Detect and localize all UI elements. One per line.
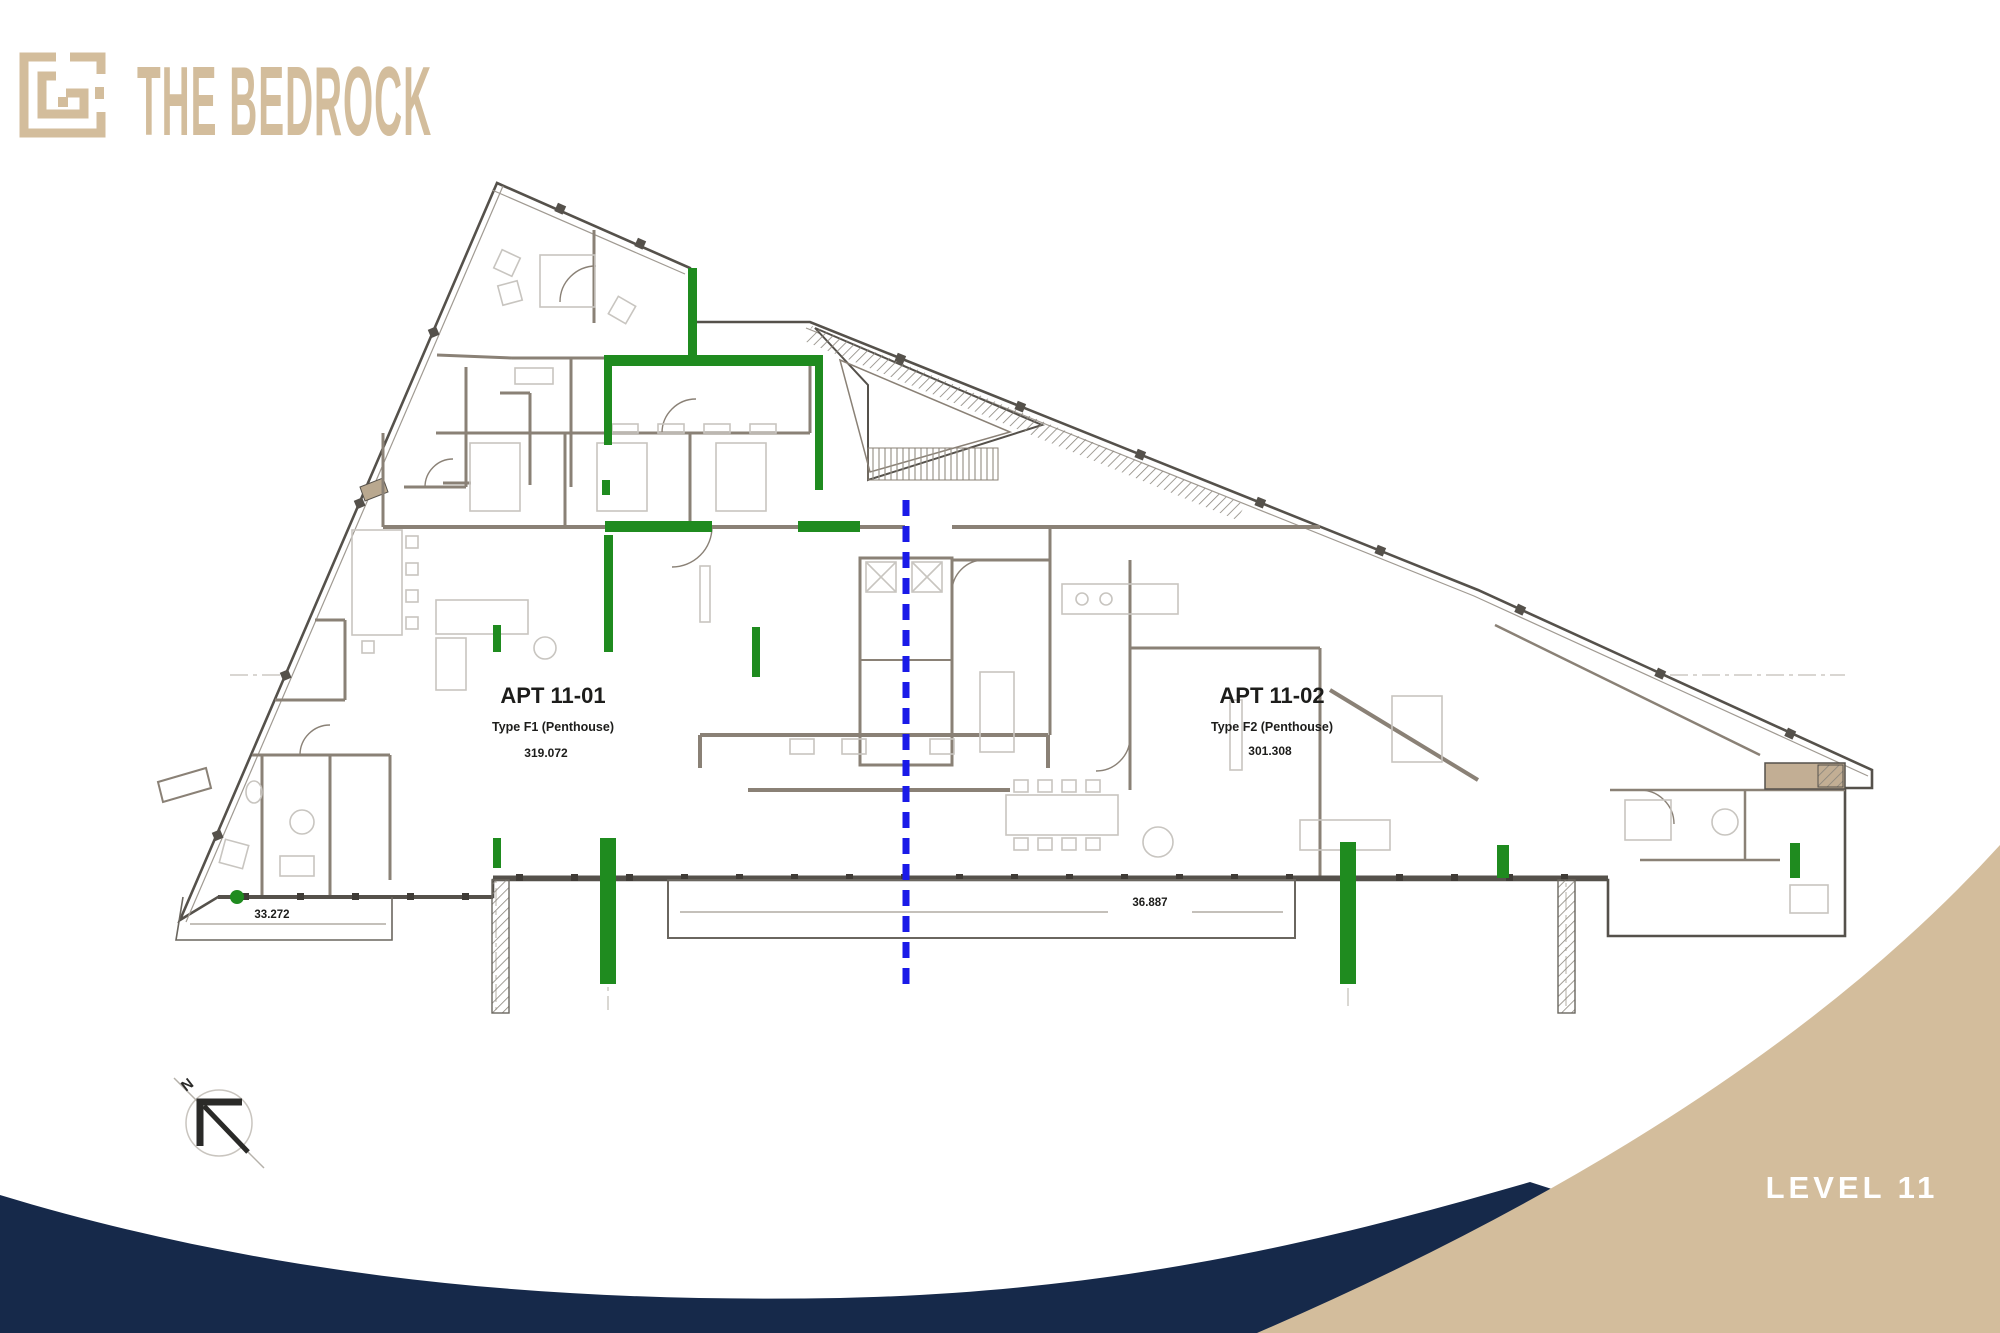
north-compass: N [174,1075,264,1168]
floor-plan: 33.272 36.887 [158,183,1872,1013]
hatched-pier-1 [492,880,509,1013]
edge-protrusion-2 [158,768,211,802]
level-badge: LEVEL 11 [1766,1170,1939,1205]
apt2-area: 301.308 [1248,744,1292,758]
balcony-band [668,880,1295,938]
dimension-left: 33.272 [254,909,289,921]
brand-header: THE BEDROCK [24,47,432,156]
apt2-type: Type F2 (Penthouse) [1211,720,1333,734]
brand-wordmark: THE BEDROCK [137,47,432,156]
bedrock-maze-logo-icon [24,57,104,133]
apt1-id: APT 11-01 [500,683,605,708]
corner-block [1765,763,1845,789]
survey-dot [230,890,244,904]
hatched-pier-2 [1558,880,1575,1013]
compass-n-label: N [178,1075,197,1095]
apt2-id: APT 11-02 [1219,683,1324,708]
apt1-type: Type F1 (Penthouse) [492,720,614,734]
dimension-bottom: 36.887 [1132,897,1167,909]
apt1-area: 319.072 [524,746,568,760]
page: LEVEL 11 THE BEDROCK [0,0,2000,1333]
